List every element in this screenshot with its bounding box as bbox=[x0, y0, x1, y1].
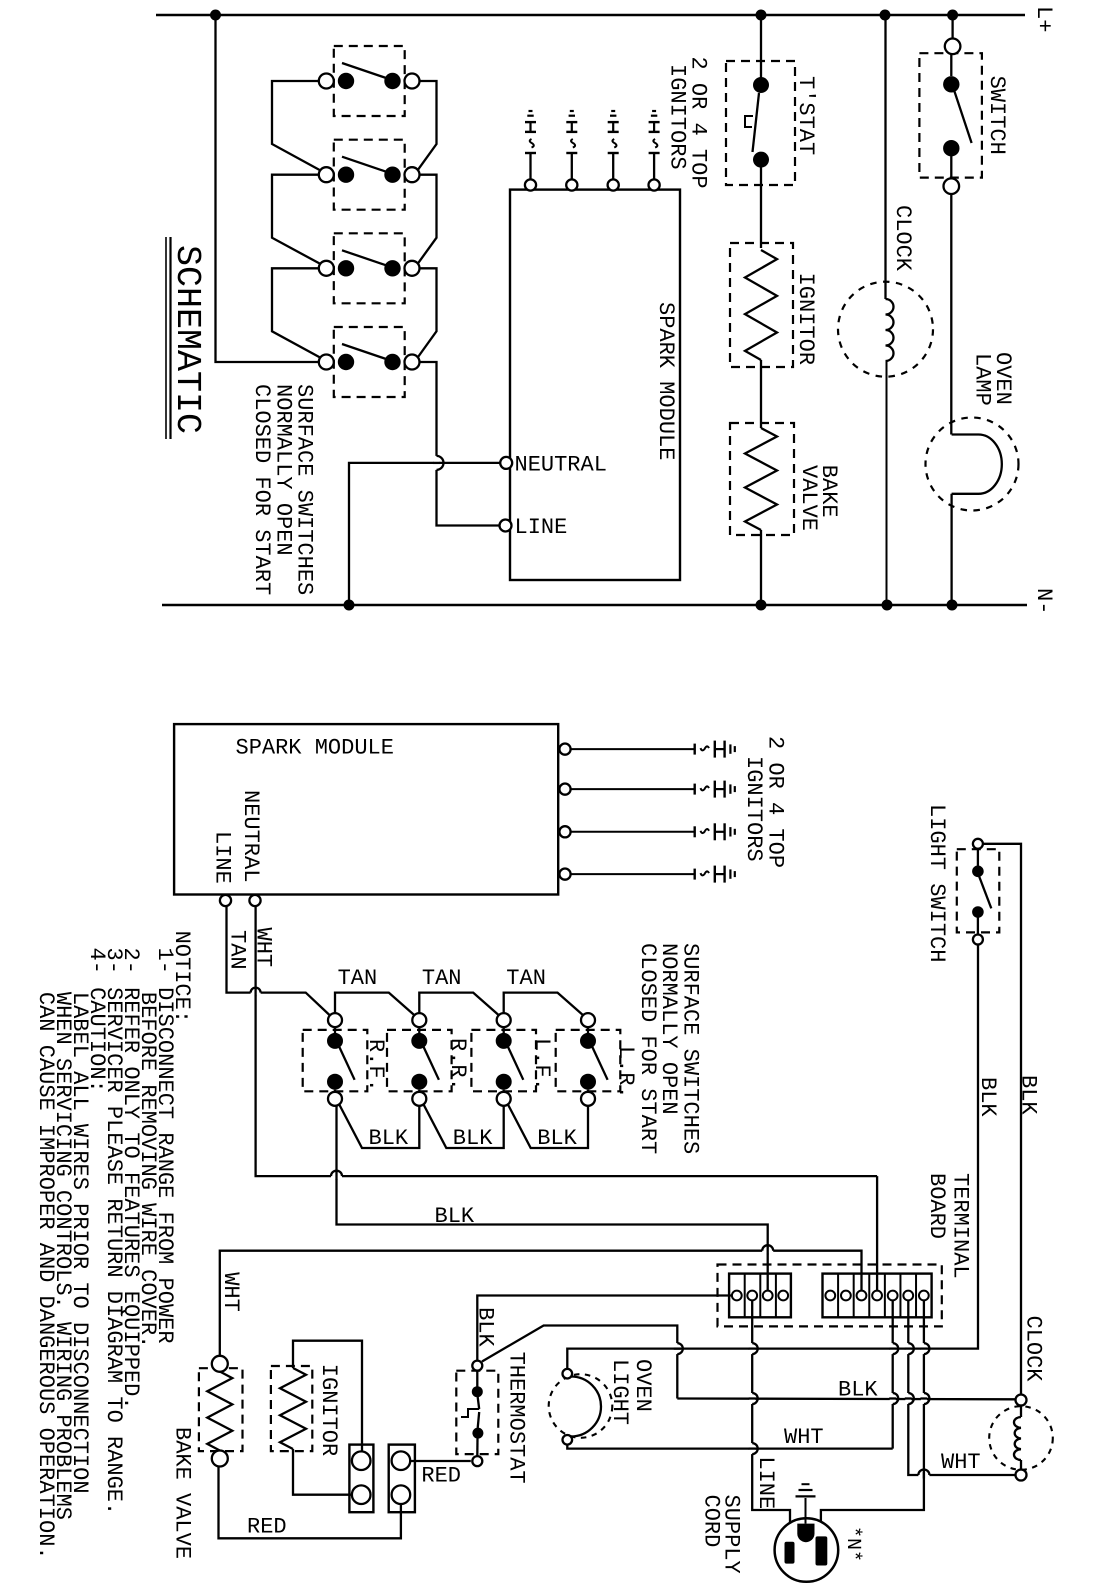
svg-text:WHT: WHT bbox=[941, 1450, 981, 1475]
svg-text:T'STAT: T'STAT bbox=[793, 76, 818, 155]
svg-text:BLK: BLK bbox=[1016, 1075, 1041, 1115]
svg-text:SWITCH: SWITCH bbox=[984, 76, 1009, 155]
svg-text:RED: RED bbox=[247, 1515, 287, 1540]
svg-text:BLK: BLK bbox=[975, 1077, 1000, 1117]
svg-text:L.R.: L.R. bbox=[613, 1046, 638, 1099]
svg-text:BOARD: BOARD bbox=[924, 1173, 949, 1239]
svg-text:OVEN: OVEN bbox=[630, 1359, 655, 1412]
svg-text:IGNITOR: IGNITOR bbox=[316, 1364, 341, 1456]
svg-text:BLK: BLK bbox=[369, 1126, 409, 1151]
svg-text:R.F.: R.F. bbox=[363, 1039, 388, 1092]
svg-text:CORD: CORD bbox=[699, 1495, 724, 1548]
svg-text:N-: N- bbox=[1031, 588, 1056, 614]
svg-text:LINE: LINE bbox=[515, 515, 568, 540]
svg-text:L+: L+ bbox=[1031, 6, 1056, 32]
svg-text:WHT: WHT bbox=[784, 1425, 824, 1450]
svg-text:CAN CAUSE IMPROPER AND DANGERO: CAN CAUSE IMPROPER AND DANGEROUS OPERATI… bbox=[33, 992, 58, 1560]
svg-text:BLK: BLK bbox=[838, 1378, 878, 1403]
svg-text:TAN: TAN bbox=[422, 966, 462, 991]
svg-text:TAN: TAN bbox=[338, 966, 378, 991]
svg-text:SPARK MODULE: SPARK MODULE bbox=[236, 736, 394, 761]
svg-text:R.R.: R.R. bbox=[445, 1038, 470, 1091]
svg-text:CLOSED FOR START: CLOSED FOR START bbox=[249, 384, 274, 595]
svg-text:TERMINAL: TERMINAL bbox=[948, 1173, 973, 1279]
svg-text:BLK: BLK bbox=[473, 1307, 498, 1347]
svg-text:BLK: BLK bbox=[453, 1126, 493, 1151]
svg-text:NEUTRAL: NEUTRAL bbox=[515, 453, 607, 478]
svg-text:TAN: TAN bbox=[506, 966, 546, 991]
svg-text:LIGHT: LIGHT bbox=[607, 1359, 632, 1425]
svg-text:NEUTRAL: NEUTRAL bbox=[238, 790, 263, 882]
svg-text:SCHEMATIC: SCHEMATIC bbox=[167, 245, 207, 434]
svg-text:LINE: LINE bbox=[209, 831, 234, 884]
svg-text:VALVE: VALVE bbox=[796, 465, 821, 531]
svg-text:WHT: WHT bbox=[218, 1272, 243, 1312]
svg-text:LINE: LINE bbox=[753, 1456, 778, 1509]
svg-text:TAN: TAN bbox=[225, 930, 250, 970]
svg-text:LIGHT SWITCH: LIGHT SWITCH bbox=[924, 804, 949, 962]
svg-text:THERMOSTAT: THERMOSTAT bbox=[503, 1352, 528, 1484]
svg-text:IGNITOR: IGNITOR bbox=[793, 273, 818, 365]
svg-text:*N*: *N* bbox=[841, 1526, 864, 1562]
svg-text:CLOSED FOR START: CLOSED FOR START bbox=[635, 943, 660, 1154]
svg-text:BLK: BLK bbox=[537, 1126, 577, 1151]
svg-text:IGNITORS: IGNITORS bbox=[741, 756, 766, 862]
svg-text:BLK: BLK bbox=[435, 1204, 475, 1229]
svg-text:IGNITORS: IGNITORS bbox=[665, 64, 690, 170]
svg-text:L.F.: L.F. bbox=[529, 1038, 554, 1091]
svg-text:CLOCK: CLOCK bbox=[890, 205, 915, 272]
svg-text:RED: RED bbox=[421, 1464, 461, 1489]
svg-text:WHT: WHT bbox=[250, 928, 275, 968]
svg-text:LAMP: LAMP bbox=[969, 353, 994, 406]
svg-text:CLOCK: CLOCK bbox=[1020, 1316, 1045, 1383]
svg-text:SPARK MODULE: SPARK MODULE bbox=[653, 302, 678, 460]
svg-text:BAKE VALVE: BAKE VALVE bbox=[170, 1427, 195, 1559]
